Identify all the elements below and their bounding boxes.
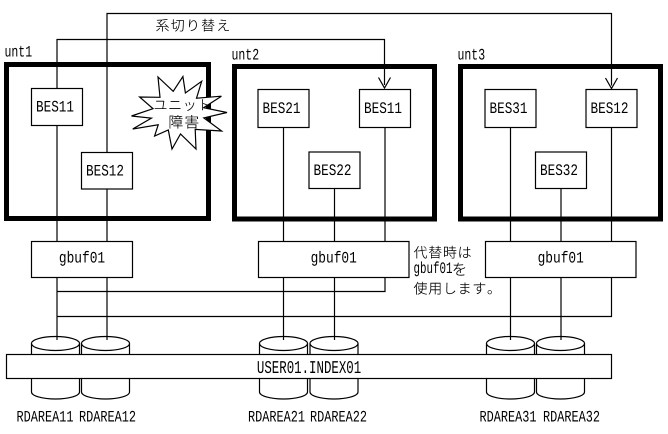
svg-text:RDAREA31: RDAREA31 — [480, 409, 537, 427]
svg-text:USER01.INDEX01: USER01.INDEX01 — [257, 359, 361, 379]
svg-text:RDAREA11: RDAREA11 — [17, 409, 74, 427]
svg-text:RDAREA12: RDAREA12 — [79, 409, 136, 427]
svg-text:unt2: unt2 — [232, 47, 260, 65]
svg-text:BES11: BES11 — [364, 100, 402, 118]
svg-text:gbuf01: gbuf01 — [311, 250, 357, 268]
svg-text:gbuf01: gbuf01 — [59, 250, 105, 268]
svg-text:unt1: unt1 — [5, 44, 33, 62]
svg-text:BES22: BES22 — [314, 162, 352, 180]
svg-text:gbuf01: gbuf01 — [538, 250, 584, 268]
svg-text:RDAREA21: RDAREA21 — [248, 409, 305, 427]
svg-text:BES12: BES12 — [591, 100, 629, 118]
svg-text:gbuf01: gbuf01 — [414, 260, 453, 278]
svg-text:BES12: BES12 — [86, 162, 124, 180]
svg-text:BES31: BES31 — [490, 100, 528, 118]
svg-text:RDAREA32: RDAREA32 — [543, 409, 600, 427]
svg-text:BES32: BES32 — [540, 162, 578, 180]
svg-text:unt3: unt3 — [458, 47, 486, 65]
svg-text:BES11: BES11 — [36, 99, 74, 117]
svg-text:BES21: BES21 — [263, 100, 301, 118]
svg-text:RDAREA22: RDAREA22 — [310, 409, 367, 427]
